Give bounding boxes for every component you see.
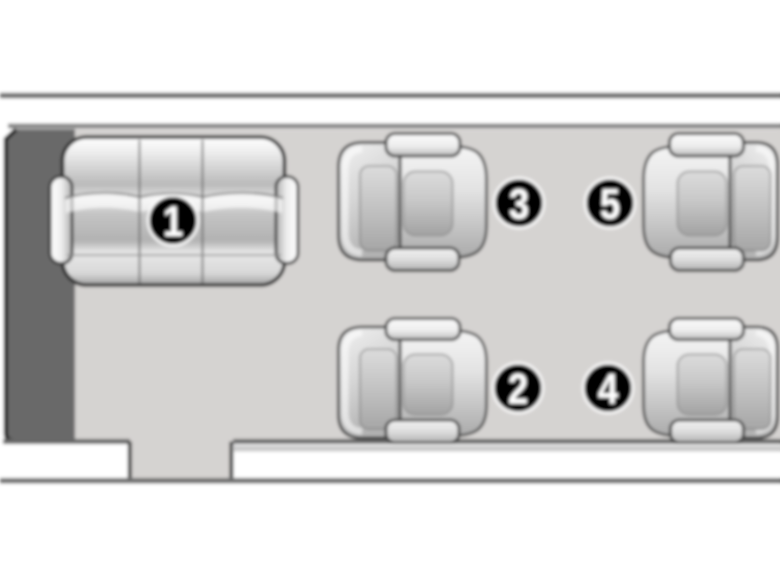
svg-text:1: 1 [163,198,183,246]
svg-text:2: 2 [508,366,528,414]
svg-text:4: 4 [598,366,618,414]
svg-text:5: 5 [600,181,620,229]
svg-text:3: 3 [509,181,529,229]
